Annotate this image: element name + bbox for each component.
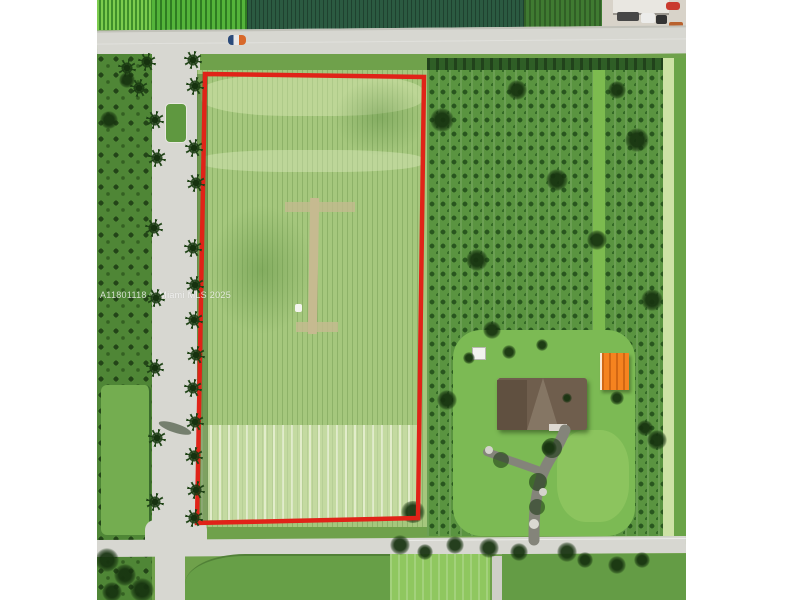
yard-tree <box>562 393 572 403</box>
orchard-right-path <box>663 58 674 536</box>
palm-tree <box>146 359 164 377</box>
orchard-tree-cluster <box>466 249 488 271</box>
orchard-tree-cluster <box>641 289 663 311</box>
palm-tree <box>186 413 204 431</box>
entrance-median-island <box>165 103 187 143</box>
field-light-stripes-bottom <box>201 425 421 520</box>
screenshot-canvas: A11801118 © Miami MLS 2025 <box>0 0 800 600</box>
roadside-tree <box>119 72 135 88</box>
dirt-path-arm <box>285 202 355 212</box>
roadside-tree <box>390 535 410 555</box>
white-object-in-field <box>295 304 302 312</box>
crop-rows-top <box>152 0 247 30</box>
bottom-field <box>185 554 390 600</box>
lawn-bright-area <box>557 430 629 522</box>
palm-tree <box>184 51 202 69</box>
bottom-field-mid <box>390 554 490 600</box>
palm-tree <box>185 311 203 329</box>
bottom-field-right <box>502 554 686 600</box>
bottom-driveway-strip <box>492 556 502 600</box>
orchard-tree-cluster <box>608 81 626 99</box>
yard-tree <box>502 345 516 359</box>
roadside-tree <box>634 552 650 568</box>
house-left-wing <box>497 380 527 430</box>
palm-tree <box>185 139 203 157</box>
red-car <box>666 2 680 10</box>
roadside-tree <box>130 578 154 600</box>
dark-truck <box>617 12 639 21</box>
crop-rows-top-left <box>97 0 152 30</box>
car-on-road <box>228 35 246 45</box>
roadside-tree <box>100 111 118 129</box>
palm-tree <box>187 174 205 192</box>
palm-tree <box>184 239 202 257</box>
orchard-bright-lane <box>593 70 605 340</box>
palm-tree <box>146 111 164 129</box>
orchard-tree-cluster <box>625 128 649 152</box>
bush-inside-corner <box>400 501 426 523</box>
field-dark-corner <box>335 80 425 155</box>
yard-tree <box>536 339 548 351</box>
palm-tree <box>185 509 203 527</box>
yard-tree <box>637 420 653 436</box>
dark-car <box>656 15 667 24</box>
yard-tree <box>541 440 557 456</box>
roadside-tree <box>510 543 528 561</box>
yard-tree <box>463 352 475 364</box>
roadside-tree <box>557 542 577 562</box>
right-edge-grass <box>674 58 686 536</box>
roadside-tree <box>417 544 433 560</box>
orchard-tree-cluster <box>437 390 457 410</box>
orchard-tree-cluster <box>507 80 527 100</box>
house-garage-front <box>549 424 567 431</box>
orchard-tree-cluster <box>483 321 501 339</box>
roadside-tree <box>102 582 122 600</box>
palm-tree <box>184 379 202 397</box>
left-grass-strip <box>101 385 151 535</box>
roadside-tree <box>608 556 626 574</box>
palm-tree <box>138 53 156 71</box>
dirt-path-lower-arm <box>296 322 338 332</box>
orchard-top-hedge <box>427 58 686 70</box>
aerial-photo: A11801118 © Miami MLS 2025 <box>97 0 686 600</box>
field-dark-patch <box>209 205 314 335</box>
roadside-tree <box>446 536 464 554</box>
orange-roof-shed <box>600 353 629 390</box>
white-van <box>641 13 655 23</box>
vertical-road-continuation <box>155 554 185 600</box>
orchard-tree-cluster <box>546 169 568 191</box>
orchard-tree-cluster <box>430 108 454 132</box>
palm-tree <box>187 481 205 499</box>
palm-tree <box>186 77 204 95</box>
palm-tree <box>148 429 166 447</box>
palm-tree <box>185 447 203 465</box>
yard-tree <box>610 391 624 405</box>
orchard-tree-cluster <box>587 230 607 250</box>
roadside-tree <box>577 552 593 568</box>
roadside-tree <box>479 538 499 558</box>
palm-tree <box>145 219 163 237</box>
palm-tree <box>186 276 204 294</box>
palm-tree <box>148 149 166 167</box>
palm-tree <box>187 346 205 364</box>
palm-tree <box>146 493 164 511</box>
palm-tree <box>147 289 165 307</box>
crop-rows-top-dark <box>247 0 524 30</box>
mls-watermark: A11801118 © Miami MLS 2025 <box>100 290 231 300</box>
